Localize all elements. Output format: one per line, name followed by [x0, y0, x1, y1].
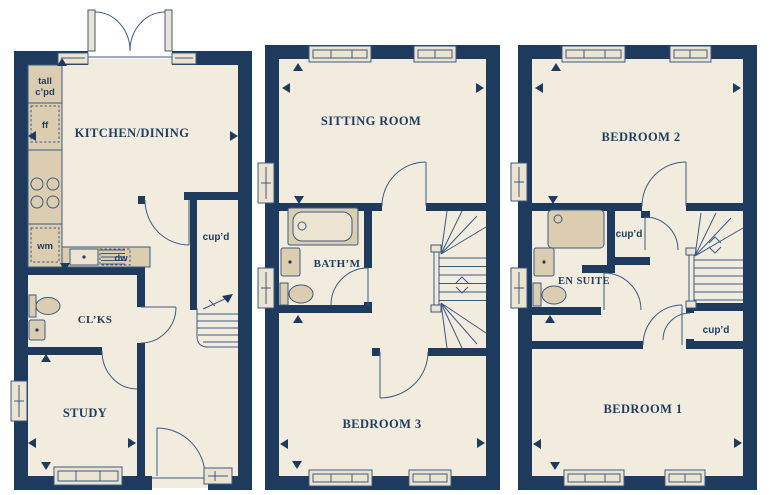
basin-fixture: [29, 320, 45, 340]
bath-fixture: [288, 208, 358, 245]
cupboard-upper-label: cup’d: [616, 229, 643, 240]
toilet-fixture: [280, 283, 313, 305]
window: [309, 470, 372, 486]
fridge-freezer-label: ff: [42, 120, 49, 131]
en-suite-label: EN SUITE: [558, 276, 610, 287]
svg-text:c’pd: c’pd: [35, 87, 55, 98]
bedroom-1-label: BEDROOM 1: [604, 402, 683, 416]
basin-fixture: [281, 248, 300, 276]
floorplan-image: tall c’pd ff KITCHEN/DINING wm dw cup’d …: [0, 0, 769, 495]
window: [409, 470, 451, 486]
window: [670, 46, 711, 62]
window: [511, 163, 527, 201]
tall-cupboard-label: tall: [38, 76, 52, 87]
ground-floor-plan: tall c’pd ff KITCHEN/DINING wm dw cup’d …: [11, 10, 252, 490]
kitchen-dining-label: KITCHEN/DINING: [75, 126, 190, 140]
study-label: STUDY: [63, 406, 107, 420]
window: [511, 268, 527, 308]
window: [665, 470, 705, 486]
window: [204, 468, 232, 484]
window: [258, 268, 274, 308]
washing-machine-label: wm: [36, 241, 53, 252]
sitting-room-label: SITTING ROOM: [321, 114, 421, 128]
bedroom-2-label: BEDROOM 2: [602, 130, 681, 144]
second-floor-plan: BEDROOM 2 cup’d EN SUITE cup’d BEDROOM 1: [511, 45, 757, 490]
bedroom-3-label: BEDROOM 3: [343, 417, 422, 431]
window: [309, 46, 371, 62]
window: [258, 163, 274, 203]
window: [172, 53, 196, 64]
french-doors: [88, 10, 172, 57]
window: [564, 470, 624, 486]
window: [11, 381, 27, 421]
bathroom-label: BATH’M: [314, 258, 361, 270]
window: [54, 467, 122, 485]
dishwasher-label: dw: [114, 253, 128, 264]
shower-fixture: [548, 210, 604, 248]
window: [414, 46, 456, 62]
basin-fixture: [534, 248, 554, 276]
cloakroom-label: CL’KS: [78, 314, 113, 326]
window: [562, 46, 625, 62]
cupboard-lower-label: cup’d: [703, 325, 730, 336]
floorplan-stage: tall c’pd ff KITCHEN/DINING wm dw cup’d …: [0, 0, 769, 495]
first-floor-plan: SITTING ROOM BATH’M BEDROOM 3: [258, 45, 500, 490]
cupboard-label: cup’d: [203, 232, 230, 243]
